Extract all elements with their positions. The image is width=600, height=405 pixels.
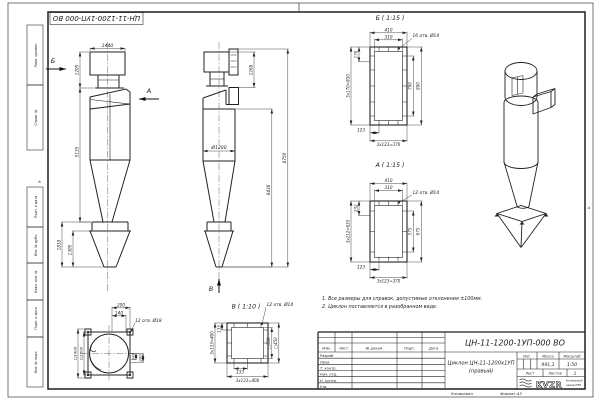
margin-fields: Перв. примен. Справ. № Подп. и дата Инв.… xyxy=(27,25,43,387)
detail-a-dim-232: 232 xyxy=(353,204,358,212)
tb-col-date: Дата xyxy=(428,347,438,351)
side-dim-total-height: 8750 xyxy=(282,152,287,163)
tb-mass-label: Масса xyxy=(542,354,553,358)
drawing-sheet: А А ЦН-11-1200-1УП-000 ВО Перв. примен. … xyxy=(0,0,600,400)
detail-a-dim-575: 575 xyxy=(408,227,413,235)
tb-sheet-label: Лист xyxy=(524,372,535,376)
detail-v-title: В ( 1:10 ) xyxy=(232,304,261,311)
detail-b-holes-note: 16 отв. Ø14 xyxy=(413,32,440,39)
front-dim-top-width: 1440 xyxy=(102,43,114,49)
margin-field-inv-dubl: Инв. № дубл. xyxy=(34,234,38,257)
front-dim-hopper-cone: 1305 xyxy=(67,244,72,255)
tb-sheets-label: Листов xyxy=(547,372,561,376)
detail-view-v: В ( 1:10 ) 12 отв. Ø14 133 3х133=400 □35… xyxy=(209,301,293,383)
front-dim-hopper-total: 1810 xyxy=(56,239,61,250)
detail-b-dim-123: 123 xyxy=(357,128,365,133)
plan-dim-200-top: 200 xyxy=(117,303,125,308)
detail-b-dim-pitch-h: 3х123=370 xyxy=(377,142,401,147)
detail-b-dim-410: 410 xyxy=(385,27,393,32)
bottom-strip: Копировал Формат А3 xyxy=(451,391,522,396)
detail-b-dim-pitch-v: 5х170=850 xyxy=(345,74,350,98)
plan-dim-140-top: 140 xyxy=(115,310,123,315)
plan-view: 200 140 12 отв. Ø18 140 200 □1406 □1200 xyxy=(72,303,161,382)
detail-b-dim-310: 310 xyxy=(385,34,393,39)
detail-b-title: Б ( 1:15 ) xyxy=(376,15,405,22)
logo-spring-icon xyxy=(520,379,532,387)
tb-scale-value: 1:50 xyxy=(567,362,577,368)
detail-a-title: А ( 1:15 ) xyxy=(375,162,405,169)
tb-row-prov: Пров. xyxy=(320,360,330,364)
plan-dim-sq1406: □1406 xyxy=(72,346,77,360)
side-dim-lower-height: 6436 xyxy=(266,184,271,195)
detail-a-dim-pitch-v: 3х212=635 xyxy=(345,219,350,243)
margin-field-podp-data-1: Подп. и дата xyxy=(34,196,38,218)
front-view: 1440 1205 5135 1810 1305 Б А xyxy=(46,42,159,292)
plan-dim-sq1200: □1200 xyxy=(79,346,84,360)
detail-v-dim-sq350: □350 xyxy=(266,337,271,349)
format-label: Формат А3 xyxy=(500,391,522,396)
detail-b-dim-890: 890 xyxy=(416,82,421,90)
detail-b-dim-170: 170 xyxy=(353,50,358,58)
detail-v-holes-note: 12 отв. Ø14 xyxy=(267,301,294,308)
detail-a-dim-pitch-h: 3х123=370 xyxy=(377,279,401,284)
detail-v-dim-pitch-bottom: 3х133=400 xyxy=(236,378,260,383)
tb-lit-label: Лит. xyxy=(522,354,531,358)
tb-row-nachotd: Нач. отд. xyxy=(320,373,337,377)
front-arrow-b-label: Б xyxy=(51,57,56,65)
tb-col-izm: Изм. xyxy=(322,347,330,351)
front-dim-body-height: 5135 xyxy=(74,146,79,157)
margin-field-podp-data-2: Подп. и дата xyxy=(34,307,38,329)
detail-a-dim-675: 675 xyxy=(416,227,421,235)
detail-v-dim-sq450: □450 xyxy=(273,337,278,349)
side-arrow-v-label: В xyxy=(209,285,214,293)
plan-dim-200-right: 200 xyxy=(138,354,143,362)
side-view: Ø1200 1269 6436 8750 В xyxy=(203,42,289,293)
plan-dim-140-right: 140 xyxy=(131,352,136,360)
tb-name-line1: Циклон ЦН-11-1200х1УП xyxy=(448,361,515,367)
detail-v-dim-pitch-left: 3х133=400 xyxy=(209,331,214,355)
tb-col-doc: № докум. xyxy=(365,347,384,351)
tb-name-line2: (правый) xyxy=(469,369,493,375)
detail-a-dim-410: 410 xyxy=(385,178,393,183)
tb-designation: ЦН-11-1200-1УП-000 ВО xyxy=(465,339,565,348)
note-line-1: 1. Все размеры для справок, допустимые о… xyxy=(322,296,482,302)
margin-field-vzam-inv: Взам. инв. № xyxy=(34,270,38,293)
title-block: Изм. Лист № докум. Подп. Дата Разраб. Пр… xyxy=(318,332,585,389)
zone-marker-right: А xyxy=(587,206,591,210)
tb-col-sign: Подп. xyxy=(404,347,415,351)
designation-flipped: ЦН-11-1200-1УП-000 ВО xyxy=(52,14,140,22)
tb-sheets-value: 1 xyxy=(574,371,577,376)
side-dim-diameter: Ø1200 xyxy=(210,144,226,151)
designation-flipped-box: ЦН-11-1200-1УП-000 ВО xyxy=(50,13,143,25)
side-dim-outlet-height: 1269 xyxy=(248,64,253,75)
margin-field-inv-podl: Инв. № подл. xyxy=(34,351,38,374)
detail-a-dim-310: 310 xyxy=(385,185,393,190)
margin-field-sprav-no: Справ. № xyxy=(34,109,38,126)
margin-field-perv-primen: Перв. примен. xyxy=(34,43,38,68)
tb-col-list: Лист xyxy=(338,347,349,351)
tb-company-line2: завод РЭП xyxy=(566,383,582,387)
detail-a-holes-note: 12 отв. Ø14 xyxy=(413,189,440,196)
notes: 1. Все размеры для справок, допустимые о… xyxy=(322,296,482,310)
detail-view-b: Б ( 1:15 ) 410 310 16 отв. Ø14 170 5х170… xyxy=(345,15,439,147)
front-dim-upper-height: 1205 xyxy=(74,64,79,75)
copy-label: Копировал xyxy=(451,391,473,396)
plan-holes-note: 12 отв. Ø18 xyxy=(135,317,162,324)
detail-a-dim-123: 123 xyxy=(357,264,365,269)
note-line-2: 2. Циклон поставляется в разобранном вид… xyxy=(322,304,437,310)
detail-v-dim-133-left: 133 xyxy=(216,325,221,333)
detail-view-a: А ( 1:15 ) 410 310 12 отв. Ø14 232 3х212… xyxy=(345,162,439,284)
front-arrow-a-label: А xyxy=(146,87,151,95)
tb-logo-text: KVZR xyxy=(536,380,562,389)
tb-row-tkontr: Т. контр. xyxy=(320,367,337,371)
tb-row-razrab: Разраб. xyxy=(320,354,334,358)
tb-scale-label: Масштаб xyxy=(563,354,581,358)
isometric-view xyxy=(495,63,556,248)
tb-mass-value: 991,3 xyxy=(541,362,554,368)
zone-marker-left: А xyxy=(37,180,41,184)
detail-v-dim-133-bottom: 133 xyxy=(236,370,244,375)
tb-row-nkontr: Н. контр. xyxy=(320,379,337,383)
detail-b-dim-790: 790 xyxy=(408,82,413,90)
tb-row-utv: Утв. xyxy=(320,385,328,389)
